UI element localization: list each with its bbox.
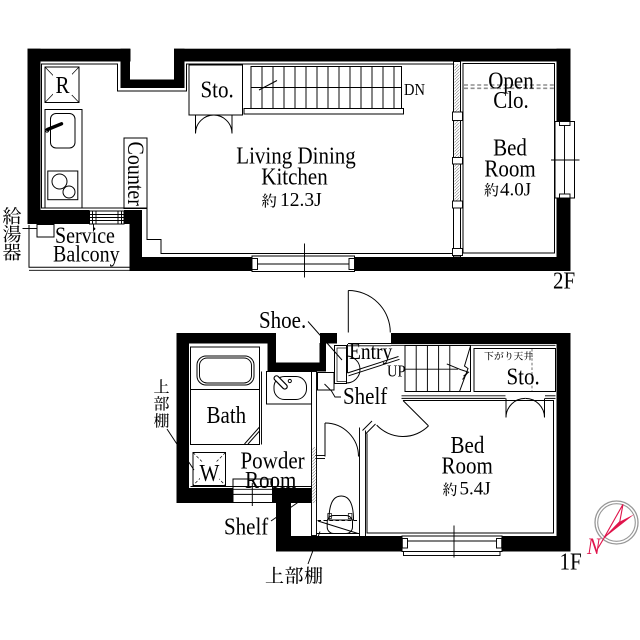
svg-text:DN: DN: [404, 81, 425, 99]
svg-text:Counter: Counter: [123, 142, 149, 207]
svg-text:Entry: Entry: [349, 339, 393, 365]
svg-text:Room: Room: [442, 452, 493, 479]
svg-text:Kitchen: Kitchen: [261, 163, 328, 190]
svg-text:2F: 2F: [553, 267, 575, 294]
svg-text:Shelf: Shelf: [343, 382, 388, 409]
svg-text:Shelf: Shelf: [224, 513, 269, 540]
svg-text:Shoe.: Shoe.: [259, 306, 306, 333]
svg-text:1F: 1F: [560, 548, 582, 575]
svg-text:Sto.: Sto.: [507, 363, 540, 390]
svg-text:W: W: [200, 459, 220, 486]
svg-text:4.0J: 4.0J: [500, 180, 531, 201]
svg-text:R: R: [56, 71, 71, 98]
svg-text:Sto.: Sto.: [201, 76, 234, 103]
svg-text:12.3J: 12.3J: [280, 190, 322, 211]
svg-text:Clo.: Clo.: [493, 86, 529, 113]
svg-text:5.4J: 5.4J: [460, 479, 491, 500]
svg-text:Balcony: Balcony: [53, 241, 120, 267]
svg-text:Room: Room: [245, 466, 296, 493]
svg-text:Bath: Bath: [207, 401, 247, 428]
svg-text:N: N: [586, 534, 602, 560]
svg-text:UP: UP: [387, 362, 406, 380]
svg-text:Room: Room: [484, 155, 535, 182]
